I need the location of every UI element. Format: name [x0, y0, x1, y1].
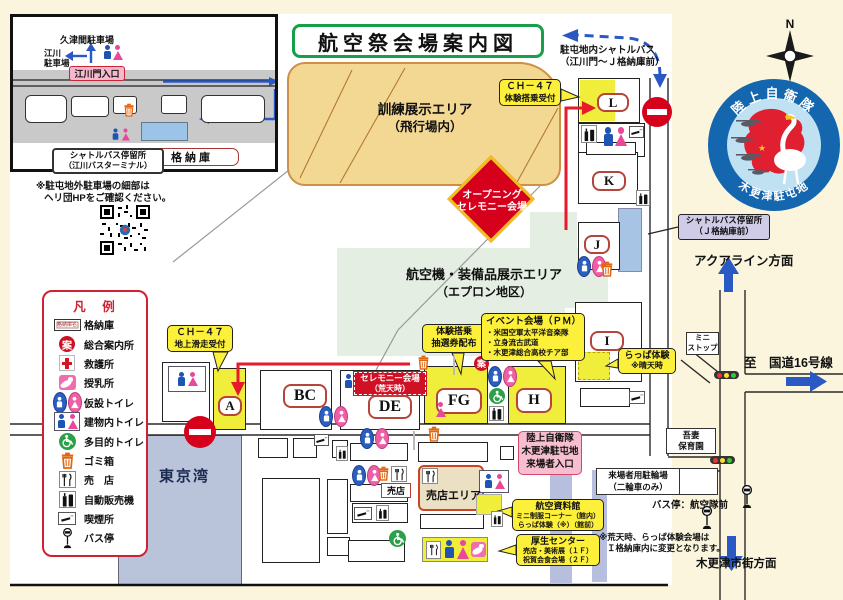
event-venue-callout: イベント会場（ＰＭ） ・米国空軍太平洋音楽隊 ・立身流古武道 ・木更津総合高校チ… — [481, 313, 585, 361]
indoor-toilet-icon — [54, 412, 80, 431]
museum-line1: 航空資料館 — [513, 501, 603, 512]
kutsuma-parking-label: 久津間駐車場 — [60, 33, 114, 46]
page-title: 航空祭会場案内図 — [318, 27, 518, 56]
smoking-icon — [629, 126, 644, 138]
shuttle-stop-j-callout: シャトルバス停留所 （Ｊ格納庫前） — [678, 214, 770, 240]
legend-label: 売 店 — [84, 472, 114, 487]
bus-stop-icon — [740, 485, 754, 509]
toilet-icon — [360, 428, 389, 449]
lottery-line2: 抽選券配布 — [423, 338, 485, 349]
trash-icon — [417, 355, 430, 370]
ch47-taxi-line2: 地上滑走受付 — [168, 339, 232, 349]
ch47-ride-line2: 体験搭乗受付 — [500, 93, 560, 103]
smoking-icon — [314, 434, 329, 446]
nursery-line2: 保育園 — [667, 441, 715, 451]
legend-label: 授乳所 — [84, 375, 114, 390]
info-icon: 案 — [59, 336, 75, 352]
vending-icon — [489, 406, 504, 421]
shuttle-stop-j-line1: シャトルバス停留所 — [679, 215, 769, 226]
entrance-line1: 陸上自衛隊 — [519, 432, 581, 445]
bike-parking-line1: 来場者用駐輪場 — [597, 469, 679, 482]
trumpet-line2: ※晴天時 — [619, 361, 675, 371]
inset-gate-toilet-icon — [103, 45, 122, 60]
legend-row-indoor-toilet: 建物内トイレ — [44, 412, 146, 431]
nursery-box: 吾妻 保育園 — [666, 428, 716, 454]
bike-parking-line2: （二輪車のみ） — [597, 482, 679, 492]
vending-icon — [636, 190, 650, 206]
legend-row-info: 案 総合案内所 — [44, 334, 146, 353]
legend-row-vending: 自動販売機 — [44, 490, 146, 509]
first-aid-icon — [59, 355, 75, 371]
event-title: イベント会場（ＰＭ） — [486, 316, 580, 328]
entrance-line2: 木更津駐屯地 — [519, 445, 581, 458]
legend-row-accessible: 多目的トイレ — [44, 431, 146, 450]
building-de-female-toilet-icon — [436, 402, 445, 417]
busstop-air-label: バス停：航空隊前 — [652, 497, 728, 511]
museum-line2: ミニ制服コーナー（館内） — [513, 512, 603, 521]
egawa-parking-label-2: 駐車場 — [44, 57, 70, 69]
bus-stop-icon — [700, 506, 714, 530]
smoking-icon — [58, 512, 76, 525]
bus-stop-icon — [61, 528, 74, 549]
vending-icon — [59, 491, 76, 508]
welfare-callout: 厚生センター 売店・美術展（１Ｆ） 祝賀会食会場（２Ｆ） — [516, 534, 600, 566]
legend-label: 格納庫 — [84, 317, 114, 332]
qr-code — [100, 205, 150, 255]
legend-row-smoking: 喫煙所 — [44, 509, 146, 528]
no-entry-sign — [184, 416, 216, 448]
rain-note-line2: Ｉ格納庫内に変更となります。 — [607, 542, 725, 554]
inset-lines — [13, 17, 275, 169]
bike-parking-box: 来場者用駐輪場 （二輪車のみ） — [596, 468, 718, 495]
outside-parking-note-2: ヘリ団HPをご確認ください。 — [44, 190, 171, 204]
venue-map: 航空祭会場案内図 訓練展示エリア （飛行場内） 航空機・装備品展示エリア （エプ… — [0, 0, 843, 600]
legend-title: 凡 例 — [44, 296, 146, 315]
legend-row-nursing: 授乳所 — [44, 373, 146, 392]
welfare-line2: 売店・美術展（１Ｆ） — [517, 547, 599, 556]
legend-label: 多目的トイレ — [84, 434, 144, 449]
city-direction-label: 木更津市街方面 — [696, 555, 777, 571]
trash-icon — [377, 466, 390, 481]
trash-icon — [123, 103, 135, 117]
no-entry-sign — [642, 97, 672, 127]
legend-row-trash: ゴミ箱 — [44, 451, 146, 470]
legend-row-busstop: バス停 — [44, 528, 146, 547]
inset-building — [25, 95, 67, 123]
accessible-toilet-icon — [59, 433, 76, 450]
lottery-line1: 体験搭乗 — [423, 325, 485, 338]
egawa-shuttle-stop-callout: シャトルバス停留所 （江川バスターミナル） — [52, 148, 164, 174]
welfare-line3: 祝賀会食会場（２Ｆ） — [517, 556, 599, 565]
building-de-male-toilet-icon — [344, 374, 353, 389]
event-item-2: ・立身流古武道 — [486, 338, 580, 348]
temp-toilet-icon — [53, 392, 67, 413]
traffic-light-icon — [710, 456, 735, 464]
ch47-taxi-line1: ＣＨ－４７ — [168, 326, 232, 339]
nursing-icon — [59, 375, 76, 390]
legend-label: 仮設トイレ — [84, 395, 134, 410]
museum-callout: 航空資料館 ミニ制服コーナー（館内） らっぱ体験（※）（館前） — [512, 499, 604, 531]
shop-area-label: 売店エリア — [426, 487, 481, 503]
event-item-3: ・木更津総合高校チア部 — [486, 348, 580, 358]
legend-label: 総合案内所 — [84, 337, 134, 352]
vending-icon — [581, 125, 597, 143]
legend-label: 喫煙所 — [84, 511, 114, 526]
entrance-line3: 来場者入口 — [519, 458, 581, 471]
trumpet-callout: らっぱ体験 ※晴天時 — [618, 348, 676, 374]
vending-icon — [376, 505, 389, 521]
inset-building — [201, 95, 265, 123]
vending-icon — [491, 511, 503, 527]
shop-label: 売店 — [381, 483, 411, 498]
toilet-icon — [488, 366, 517, 387]
trash-icon — [600, 261, 614, 277]
legend-label: 救護所 — [84, 356, 114, 371]
legend-label: ゴミ箱 — [84, 453, 114, 468]
hangar-icon: 格納庫名 — [54, 319, 81, 331]
page-title-box: 航空祭会場案内図 — [292, 24, 544, 58]
egawa-shuttle-stop-line2: （江川バスターミナル） — [54, 161, 162, 171]
legend-label: バス停 — [84, 530, 114, 545]
accessible-toilet-icon — [489, 388, 505, 404]
egawa-shuttle-stop-line1: シャトルバス停留所 — [54, 150, 162, 161]
shuttle-stop-j-line2: （Ｊ格納庫前） — [679, 226, 769, 236]
inset-building — [71, 96, 109, 117]
ministop-box: ミニ ストップ — [686, 332, 719, 355]
trash-icon — [60, 452, 75, 469]
ch47-ride-line1: ＣＨ－４７ — [500, 80, 560, 93]
trumpet-line1: らっぱ体験 — [619, 349, 675, 361]
nursery-line1: 吾妻 — [667, 429, 715, 441]
trash-icon — [427, 426, 441, 442]
legend-panel: 凡 例 格納庫名 格納庫 案 総合案内所 救護所 授乳所 仮設トイレ 建物内トイ… — [42, 290, 148, 557]
vending-icon — [336, 446, 348, 461]
ministop-line1: ミニ — [687, 333, 718, 343]
shop-icon — [422, 468, 438, 484]
inset-terminal-toilet-icon — [111, 127, 130, 142]
legend-label: 建物内トイレ — [84, 414, 144, 429]
inset-building — [161, 95, 187, 114]
lottery-callout: 体験搭乗 抽選券配布 — [422, 324, 486, 353]
route16-direction-label: 至 国道16号線 — [744, 352, 833, 371]
aqualine-direction-label: アクアライン方面 — [694, 250, 793, 269]
ministop-line2: ストップ — [687, 343, 718, 352]
ch47-taxi-callout: ＣＨ－４７ 地上滑走受付 — [167, 325, 233, 352]
welfare-line1: 厚生センター — [517, 536, 599, 547]
shop-icon — [391, 466, 407, 482]
inset-bus-terminal-shape — [141, 122, 188, 141]
traffic-light-icon — [714, 371, 739, 379]
legend-row-temp-toilet: 仮設トイレ — [44, 393, 146, 412]
ch47-ride-callout: ＣＨ－４７ 体験搭乗受付 — [499, 79, 561, 106]
museum-line3: らっぱ体験（※）（館前） — [513, 521, 603, 530]
smoking-icon — [629, 391, 645, 404]
legend-label: 自動販売機 — [84, 492, 134, 507]
legend-row-shop: 売 店 — [44, 470, 146, 489]
accessible-toilet-icon — [389, 530, 406, 547]
shuttle-note-line2: （江川門～Ｊ格納庫前） — [560, 54, 665, 68]
legend-row-firstaid: 救護所 — [44, 354, 146, 373]
legend-row-hangar: 格納庫名 格納庫 — [44, 315, 146, 334]
egawa-gate-entrance-label: 江川門入口 — [69, 66, 125, 81]
shop-icon — [59, 471, 76, 488]
event-item-1: ・米国空軍太平洋音楽隊 — [486, 328, 580, 338]
visitor-entrance-label: 陸上自衛隊 木更津駐屯地 来場者入口 — [518, 431, 582, 475]
smoking-icon — [354, 507, 372, 520]
toilet-icon — [602, 127, 627, 147]
